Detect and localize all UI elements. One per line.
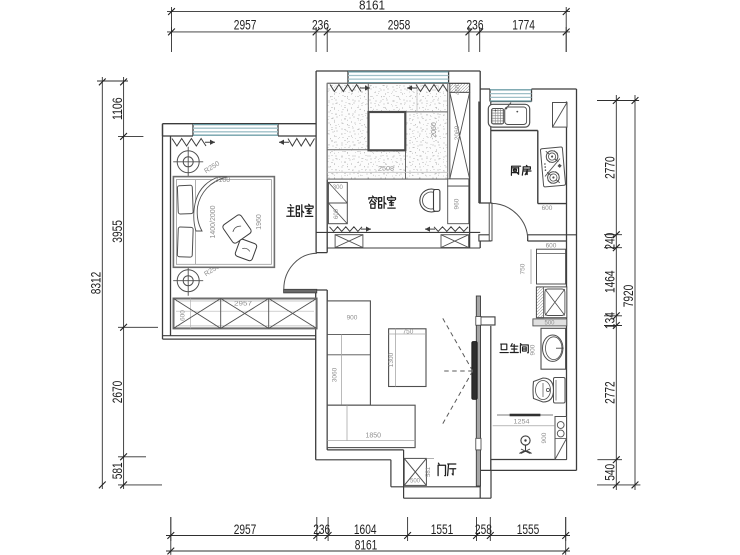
svg-text:500: 500 [544,321,555,327]
svg-text:450: 450 [456,84,462,95]
svg-text:1300: 1300 [388,352,395,367]
svg-text:750: 750 [403,328,414,335]
svg-text:2770: 2770 [602,156,618,179]
svg-text:236: 236 [313,521,330,537]
svg-text:1254: 1254 [514,419,531,426]
svg-text:2060: 2060 [431,122,438,138]
svg-text:1551: 1551 [431,521,454,537]
svg-text:581: 581 [109,462,125,479]
svg-text:1960: 1960 [256,214,263,230]
svg-text:2508: 2508 [378,166,395,173]
svg-text:R250: R250 [203,160,221,175]
svg-text:1400/2000: 1400/2000 [210,205,217,238]
svg-text:2060: 2060 [454,125,461,140]
svg-text:236: 236 [312,17,329,33]
svg-text:750: 750 [520,263,527,274]
svg-text:1464: 1464 [602,270,618,293]
svg-text:240: 240 [602,233,618,250]
svg-text:258: 258 [475,521,492,537]
svg-text:2670: 2670 [109,381,125,404]
svg-text:1774: 1774 [512,17,535,33]
svg-text:2957: 2957 [234,521,257,537]
svg-text:600: 600 [542,205,553,212]
svg-text:900: 900 [347,315,358,322]
svg-text:500: 500 [410,479,421,485]
svg-text:581: 581 [426,466,432,477]
svg-text:8312: 8312 [88,272,104,295]
svg-text:600: 600 [546,243,557,250]
svg-text:1555: 1555 [517,521,540,537]
svg-text:960: 960 [454,198,461,209]
svg-text:300: 300 [333,185,344,191]
svg-text:3060: 3060 [331,367,338,382]
svg-text:8161: 8161 [355,537,378,553]
svg-text:2957: 2957 [234,17,257,33]
svg-text:1604: 1604 [354,521,377,537]
svg-text:7920: 7920 [620,285,636,308]
svg-text:3955: 3955 [109,220,125,243]
svg-text:2100: 2100 [215,177,231,184]
svg-text:900: 900 [541,432,548,443]
svg-text:2772: 2772 [602,381,618,404]
svg-text:2957: 2957 [234,301,252,308]
svg-text:8161: 8161 [359,0,385,12]
svg-text:134: 134 [602,312,618,329]
svg-text:900: 900 [530,344,537,355]
svg-text:540: 540 [602,464,618,481]
svg-text:1106: 1106 [109,97,125,120]
svg-text:1850: 1850 [366,433,382,440]
svg-text:600: 600 [334,208,340,219]
svg-text:2958: 2958 [388,17,411,33]
svg-text:600: 600 [180,310,187,321]
svg-text:236: 236 [467,17,484,33]
